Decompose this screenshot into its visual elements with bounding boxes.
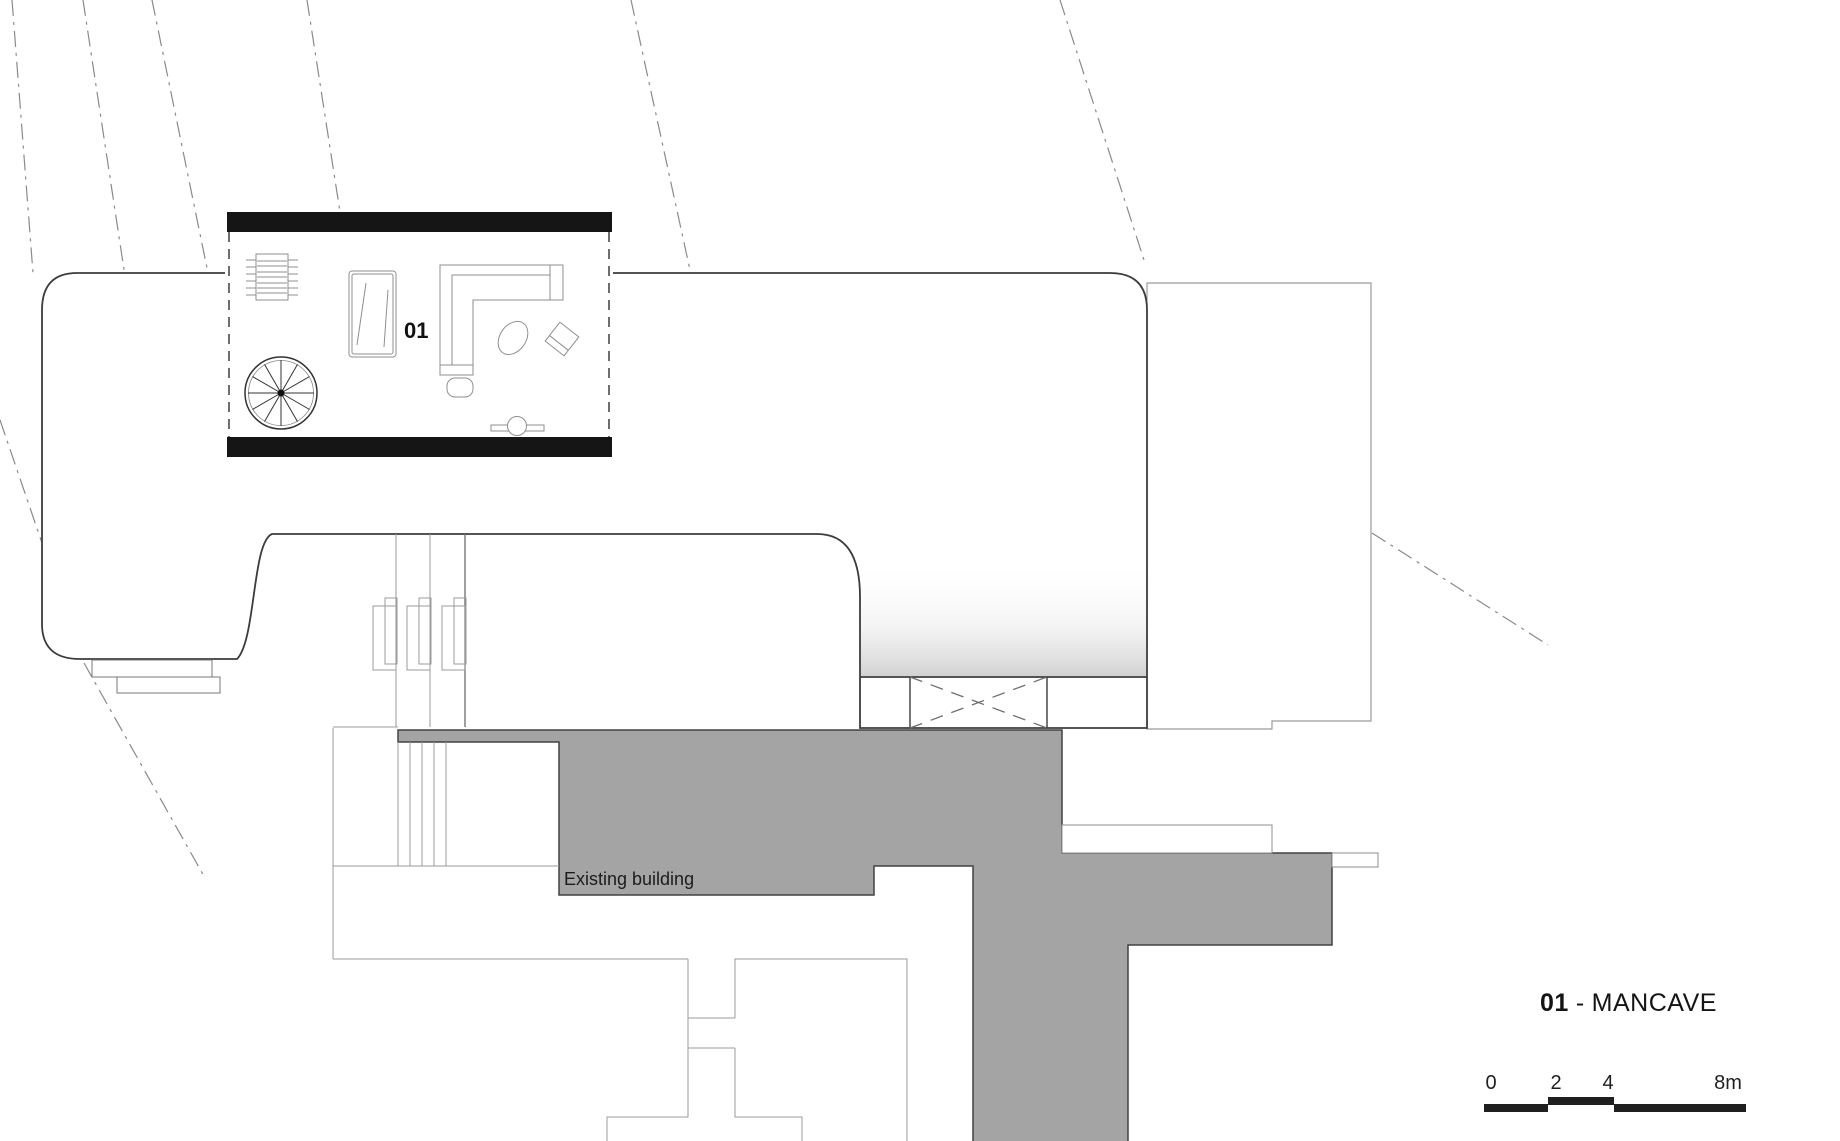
entry-steps bbox=[92, 660, 220, 693]
existing-building-mass bbox=[398, 730, 1378, 1141]
terrace-gradient bbox=[861, 560, 1146, 676]
floor-plan-drawing bbox=[0, 0, 1840, 1141]
scale-tick-8m: 8m bbox=[1714, 1072, 1742, 1095]
sliding-panels bbox=[373, 598, 466, 670]
scale-tick-4: 4 bbox=[1602, 1072, 1613, 1095]
room-wall-bottom bbox=[227, 437, 612, 457]
courtyard-glazing bbox=[373, 534, 466, 727]
scale-segment-2 bbox=[1548, 1097, 1614, 1105]
existing-roof-tab bbox=[1332, 853, 1378, 867]
scale-tick-2: 2 bbox=[1550, 1072, 1561, 1095]
scale-segment-3 bbox=[1614, 1104, 1746, 1112]
existing-roof-strip bbox=[1062, 825, 1272, 853]
legend-separator: - bbox=[1576, 989, 1585, 1017]
legend-room-number: 01 bbox=[1540, 989, 1569, 1017]
scale-tick-0: 0 bbox=[1485, 1072, 1496, 1095]
room-wall-top bbox=[227, 212, 612, 232]
legend: 01-MANCAVE bbox=[1540, 989, 1717, 1018]
spiral-staircase-icon bbox=[245, 357, 317, 429]
legend-room-name: MANCAVE bbox=[1592, 989, 1717, 1017]
scale-segment-1 bbox=[1484, 1104, 1548, 1112]
room-number-label: 01 bbox=[404, 318, 428, 344]
annex-outline bbox=[1147, 283, 1371, 729]
existing-building-label: Existing building bbox=[564, 869, 694, 890]
floor-plan-canvas: 01 Existing building 01-MANCAVE 0 2 4 8m bbox=[0, 0, 1840, 1141]
